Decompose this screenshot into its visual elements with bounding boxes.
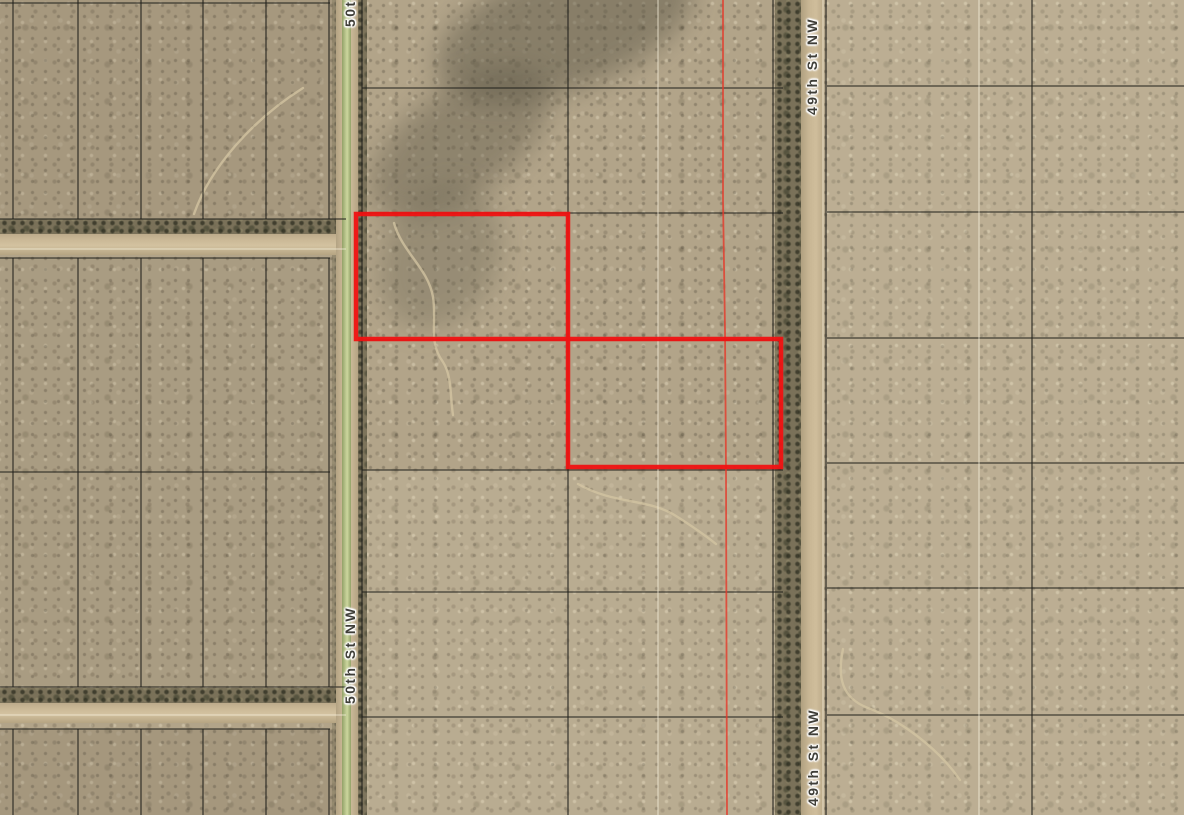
dirt-road-east-west-north (0, 234, 346, 255)
dirt-road-east-west-south (0, 703, 346, 723)
parcel-highlight-southeast[interactable] (568, 339, 781, 467)
street-centerline-50th (342, 0, 351, 815)
vegetation-strip (0, 219, 346, 234)
dirt-trail (194, 88, 303, 214)
street-label-50th-st-nw: 50th St NW (342, 606, 358, 704)
terrain-region-middle-lower (346, 470, 784, 815)
street-label-49th-st-nw-north: 49th St NW (804, 17, 820, 115)
terrain-region-left-top (0, 0, 346, 219)
survey-lines (0, 0, 979, 815)
terrain-region-left-middle (0, 258, 346, 687)
dark-terrain-patch (417, 0, 713, 132)
dirt-trail (841, 649, 960, 780)
dark-terrain-patch (354, 164, 526, 350)
dirt-trails (194, 88, 960, 780)
map-overlay (0, 0, 1184, 815)
terrain-region-left-bottom (0, 729, 346, 815)
parcel-boundary-lines (0, 0, 1184, 815)
terrain-region-east (827, 0, 1184, 815)
dark-terrain-patch (344, 38, 576, 246)
road-50th-st-nw (336, 0, 358, 815)
dirt-trail (578, 484, 716, 544)
parcel-highlight-northwest[interactable] (356, 214, 568, 339)
aerial-map-canvas[interactable]: 50th St NW 50th St NW 49th St NW 49th St… (0, 0, 1184, 815)
dirt-trail (394, 223, 453, 415)
section-line-red (723, 0, 727, 815)
vegetation-strip (356, 0, 367, 815)
vegetation-strip (0, 688, 346, 703)
vegetation-strip (332, 0, 337, 815)
street-label-50th-st-nw-top: 50th St NW (342, 0, 358, 27)
street-label-49th-st-nw-south: 49th St NW (805, 708, 821, 806)
road-49th-st-nw (801, 0, 824, 815)
vegetation-strip (775, 0, 801, 815)
